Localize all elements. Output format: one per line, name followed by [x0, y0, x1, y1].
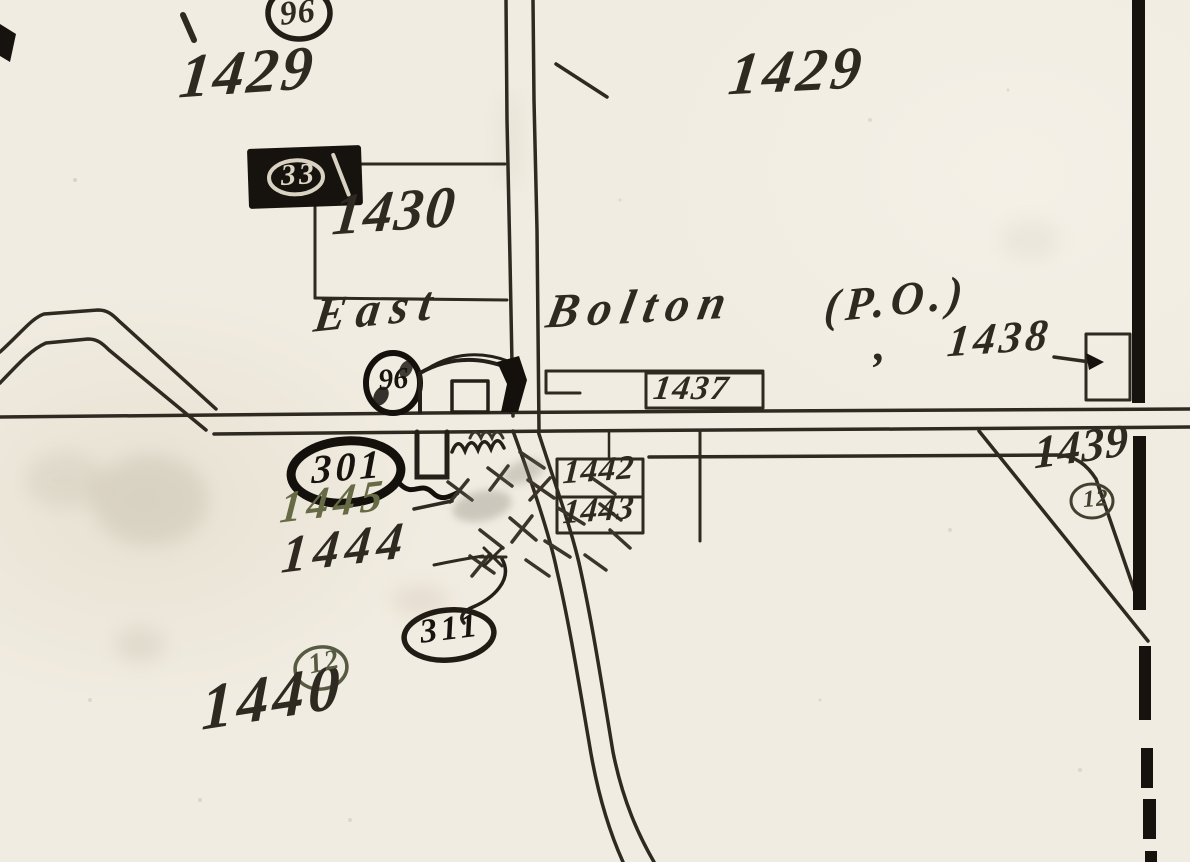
marker-label-12-se: 12 [1082, 486, 1110, 512]
plat-map: East Bolton (P.O.) 1429 1429 1430 1437 ,… [0, 0, 1190, 862]
east-boundary-dash-3 [1143, 799, 1156, 839]
map-linework [0, 0, 1190, 862]
parcel-label-1429-ne: 1429 [726, 37, 869, 105]
parcel-label-1438-comma: , [874, 322, 886, 368]
marker-label-33-box: 33 [280, 159, 318, 191]
tick-northeast [556, 64, 607, 97]
parcel-label-1443: 1443 [562, 491, 636, 530]
marker-label-96-po: 96 [377, 363, 410, 396]
marker-label-311: 311 [418, 609, 483, 650]
edge-wedge [0, 24, 16, 62]
arrowhead-1438 [1086, 353, 1104, 370]
east-boundary-bar [1133, 436, 1146, 610]
road-west-upper-edge [0, 310, 216, 409]
ink-blob-corner [497, 356, 527, 412]
strip-1437-hook [546, 371, 580, 393]
leader-1445 [414, 501, 452, 509]
road-north-left-edge [506, 0, 513, 416]
parcel-label-1442: 1442 [562, 451, 636, 490]
parcel-label-1437: 1437 [651, 372, 732, 406]
tick-top-left [183, 15, 194, 40]
place-name-bolton: Bolton [543, 278, 740, 336]
building-u-shape [417, 432, 447, 477]
east-boundary-upper [1132, 0, 1145, 403]
east-boundary-dash-4 [1145, 851, 1157, 862]
parcel-label-1438: 1438 [945, 313, 1053, 365]
road-north-right-edge [533, 0, 539, 430]
marker-label-96-top: 96 [278, 0, 317, 32]
parcel-label-1430: 1430 [330, 177, 460, 244]
road-se-diagonal-inner [649, 455, 1138, 601]
east-boundary-dash-1 [1139, 646, 1151, 720]
marker-label-12-sw: 12 [306, 645, 343, 679]
parcel-label-1429-nw: 1429 [176, 37, 318, 109]
east-boundary-dash-2 [1141, 748, 1153, 788]
road-main-top-edge [0, 409, 1190, 417]
marker-label-301: 301 [311, 444, 383, 490]
